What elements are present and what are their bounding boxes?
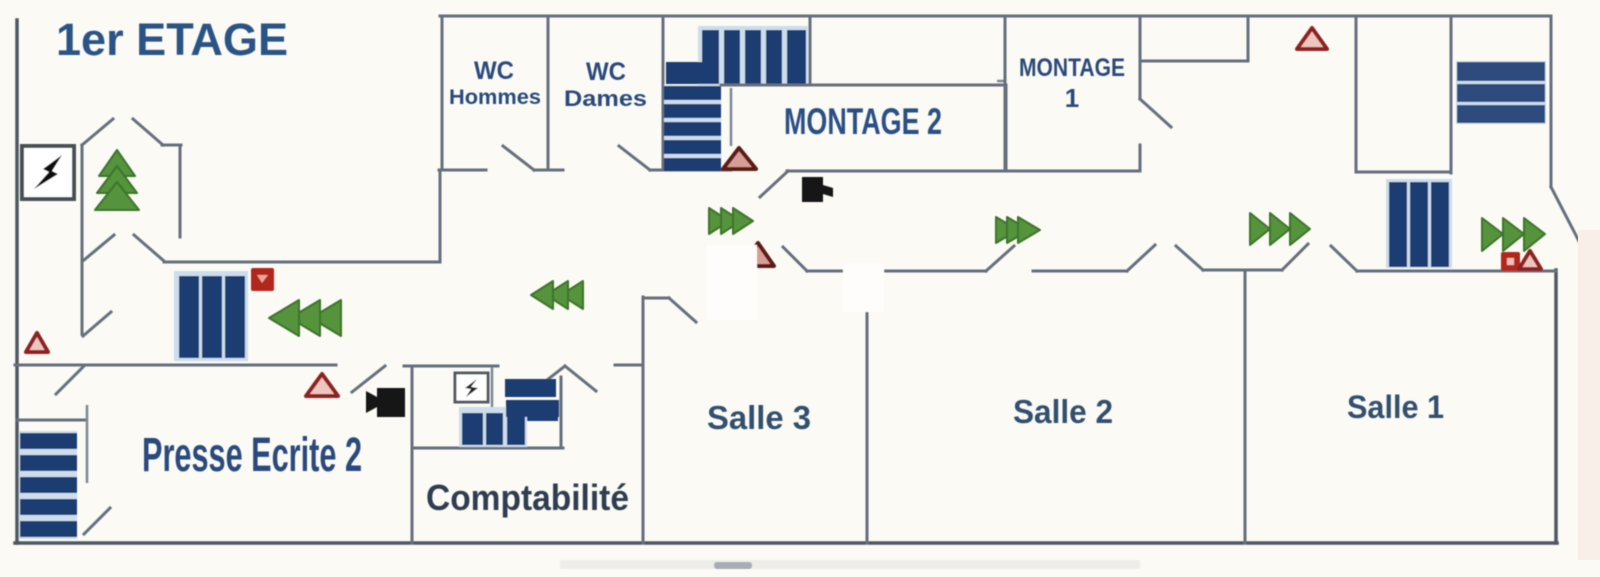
svg-text:1: 1 bbox=[1065, 83, 1079, 113]
svg-text:MONTAGE 2: MONTAGE 2 bbox=[784, 101, 942, 142]
svg-text:Salle 2: Salle 2 bbox=[1013, 393, 1113, 430]
svg-text:1er ETAGE: 1er ETAGE bbox=[56, 14, 288, 65]
svg-text:Presse Ecrite 2: Presse Ecrite 2 bbox=[142, 429, 362, 482]
svg-text:WC: WC bbox=[586, 58, 626, 86]
svg-text:WC: WC bbox=[474, 57, 514, 85]
svg-text:Salle 3: Salle 3 bbox=[707, 399, 811, 436]
svg-text:Salle 1: Salle 1 bbox=[1347, 389, 1444, 425]
svg-text:Hommes: Hommes bbox=[449, 86, 541, 109]
svg-text:MONTAGE: MONTAGE bbox=[1019, 54, 1125, 82]
svg-text:Dames: Dames bbox=[564, 86, 647, 111]
svg-text:Comptabilité: Comptabilité bbox=[426, 477, 629, 518]
